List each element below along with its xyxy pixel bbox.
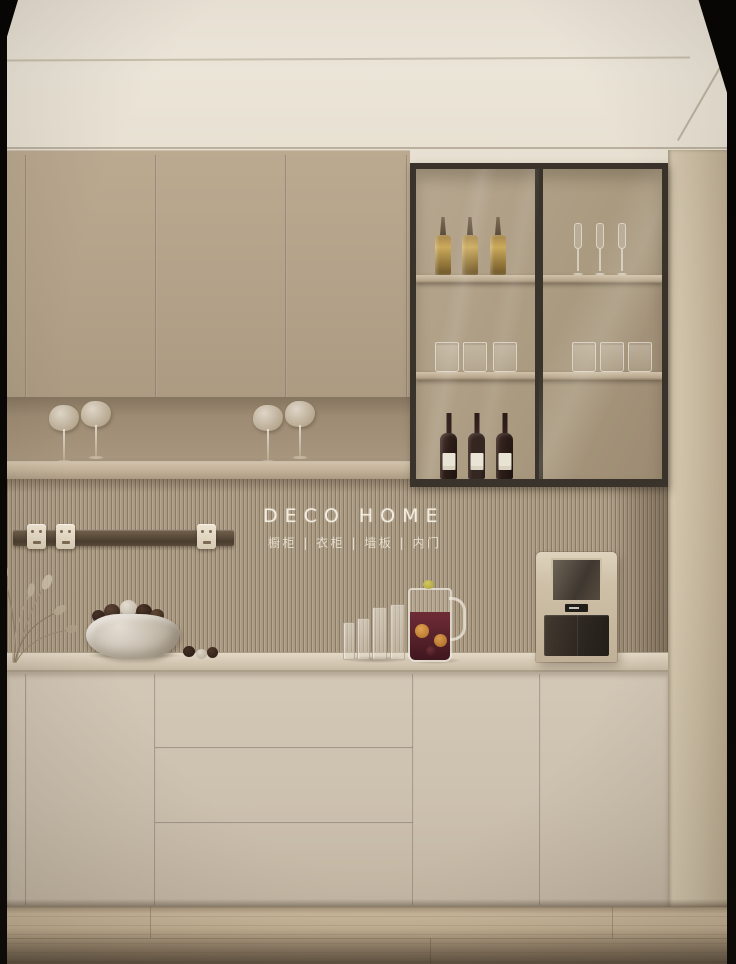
dried-plant — [0, 540, 84, 665]
dispenser-tank-window — [551, 558, 602, 602]
floor-bottom-shade — [7, 928, 727, 964]
wine-bottle — [496, 413, 513, 479]
open-shelf-board — [7, 461, 410, 480]
stone-bowl — [86, 614, 180, 658]
fruit — [196, 649, 207, 659]
decor-goblet — [251, 405, 285, 463]
tall-glass — [357, 618, 370, 660]
tall-glass — [343, 622, 355, 660]
power-socket — [197, 524, 216, 549]
gold-bottle — [462, 217, 478, 275]
upper-cabinets — [7, 150, 410, 397]
cabinet-floor-shadow — [7, 899, 727, 907]
cabinet-door-divider — [535, 169, 543, 479]
lower-door-seam — [539, 674, 541, 905]
champagne-flute — [594, 223, 606, 275]
lower-cabinets — [7, 672, 668, 907]
tall-glass — [372, 607, 387, 660]
drinking-glass — [628, 342, 652, 372]
lower-door-seam — [25, 674, 27, 905]
champagne-flute — [616, 223, 628, 275]
glass-display-cabinet — [410, 163, 668, 487]
wine-bottle — [468, 413, 485, 479]
drawer-seam — [155, 747, 413, 749]
upper-door-seam — [406, 155, 408, 397]
drinking-glass — [493, 342, 517, 372]
tall-glass — [390, 604, 405, 660]
gold-bottle — [435, 217, 451, 275]
pitcher-garnish — [423, 580, 434, 589]
fruit — [207, 647, 218, 658]
drinking-glass — [463, 342, 487, 372]
photo-edge-right — [727, 0, 736, 964]
dispenser-display — [565, 604, 588, 612]
drinking-glass — [600, 342, 624, 372]
dark-fruit — [426, 646, 436, 656]
drinking-glass — [572, 342, 596, 372]
gold-bottle — [490, 217, 506, 275]
brand-tagline: 橱柜 | 衣柜 | 墙板 | 内门 — [268, 534, 438, 551]
lower-door-seam — [412, 674, 414, 905]
decor-goblet — [47, 405, 81, 463]
cabinet-top-line — [7, 147, 727, 149]
drawer-seam — [155, 822, 413, 824]
dispenser-front-panel — [544, 615, 609, 656]
lower-door-seam — [154, 674, 156, 905]
right-side-panel — [668, 150, 727, 907]
upper-door-seam — [155, 155, 157, 397]
open-shelf-niche — [7, 397, 410, 462]
ceiling — [7, 0, 727, 163]
decor-goblet — [283, 401, 317, 459]
champagne-flute — [572, 223, 584, 275]
fruit — [183, 646, 195, 657]
pitcher — [408, 588, 452, 662]
kitchen-photo: DECO HOME 橱柜 | 衣柜 | 墙板 | 内门 — [0, 0, 736, 964]
brand-logo: DECO HOME — [263, 505, 443, 527]
upper-door-seam — [285, 155, 287, 397]
water-dispenser — [536, 552, 617, 662]
glass-door-right — [539, 169, 662, 479]
drinking-glass — [435, 342, 459, 372]
photo-edge-left — [0, 0, 7, 964]
backsplash-shadow — [610, 479, 668, 658]
wine-bottle — [440, 413, 457, 479]
orange-slice — [434, 634, 447, 647]
decor-goblet — [79, 401, 113, 459]
orange-slice — [415, 624, 429, 638]
upper-door-seam — [25, 155, 27, 397]
